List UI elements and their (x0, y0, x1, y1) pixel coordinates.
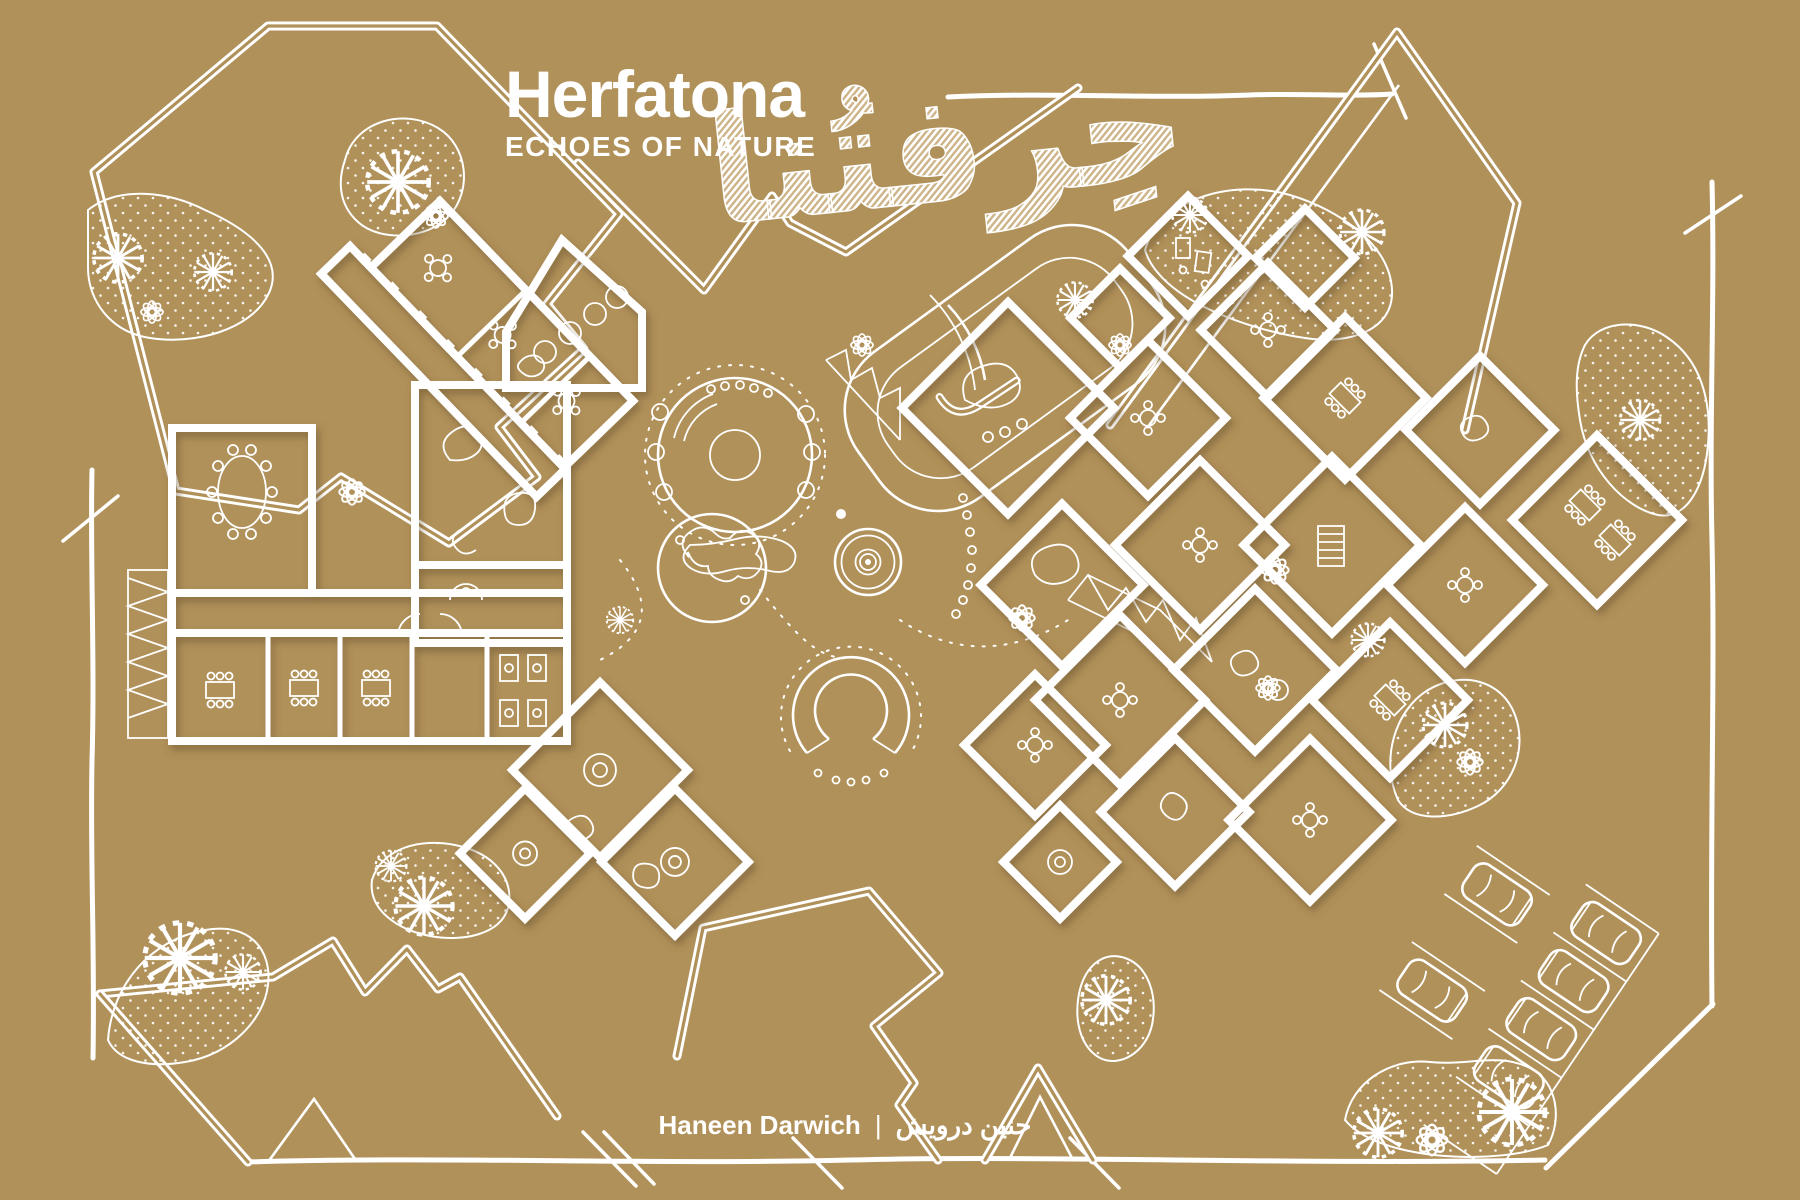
table-icon (290, 671, 318, 706)
table-icon (1448, 568, 1482, 602)
credit-line: Haneen Darwich|حنين درويش (545, 1110, 1145, 1141)
table-icon (206, 673, 234, 708)
tree-icon (607, 607, 633, 633)
sofa-icon (1156, 788, 1191, 824)
landscape-blob (372, 843, 510, 938)
courtyard (600, 196, 1212, 785)
toilet-fixtures (500, 655, 546, 726)
car-icon (1534, 945, 1613, 1016)
stairs-icon (1318, 526, 1344, 566)
site-plan-drawing: حِرفتُنا (0, 0, 1800, 1200)
fountain (835, 509, 901, 595)
car-icon (1567, 897, 1646, 968)
flower-icon (851, 334, 873, 356)
site-plan-poster: حِرفتُنا Herfatona ECHOES OF NATURE Hane… (0, 0, 1800, 1200)
trellis (128, 570, 168, 738)
landscape-blob (88, 194, 273, 340)
author-name: Haneen Darwich (659, 1110, 861, 1140)
car-icon (1458, 859, 1537, 930)
sofa-icon (1231, 651, 1258, 676)
table-icon (1131, 401, 1165, 435)
car-icon (1393, 955, 1472, 1026)
table-icon (1103, 683, 1137, 717)
credit-separator: | (875, 1110, 882, 1140)
table-icon (1018, 728, 1052, 762)
landscape-blob (1390, 680, 1519, 817)
car-icon (1502, 994, 1581, 1065)
table-icon (1323, 376, 1368, 421)
table-icon (1593, 518, 1638, 563)
tree-icon (1057, 282, 1092, 317)
sofa-icon (628, 858, 664, 893)
page-title: Herfatona (505, 60, 816, 129)
c-shaped-seat (781, 647, 921, 786)
page-subtitle: ECHOES OF NATURE (505, 131, 816, 163)
author-name-arabic: حنين درويش (896, 1110, 1032, 1140)
table-icon (414, 244, 462, 292)
landscape-blob (108, 929, 268, 1065)
table-icon (1183, 528, 1217, 562)
table-icon (1563, 483, 1608, 528)
title-block: Herfatona ECHOES OF NATURE (505, 60, 816, 163)
table-icon (1293, 803, 1327, 837)
table-icon (362, 671, 390, 706)
